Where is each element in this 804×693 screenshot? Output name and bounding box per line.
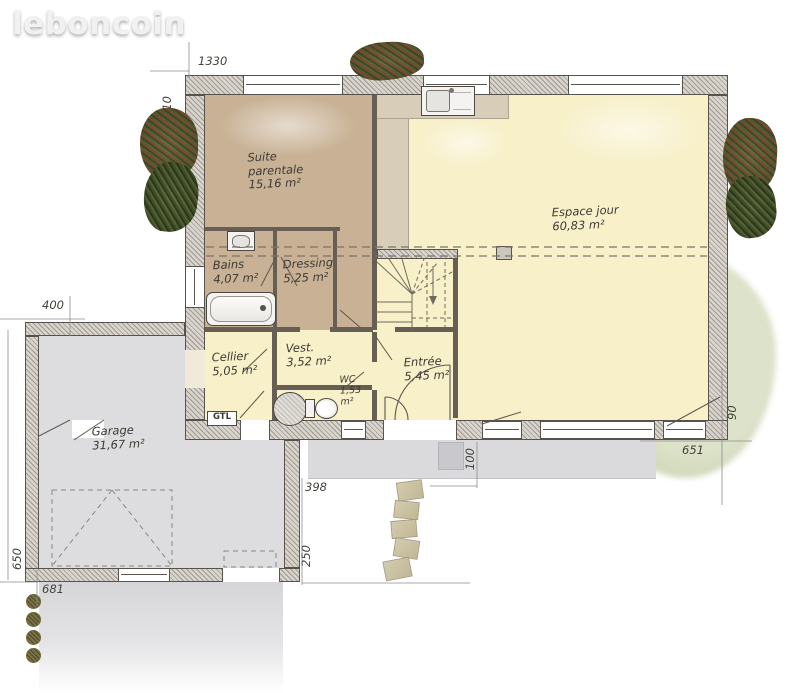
room-label-vestibule: Vest. 3,52 m² xyxy=(285,340,344,370)
room-area: 5,05 m² xyxy=(212,362,275,378)
staircase xyxy=(377,259,453,332)
leboncoin-logo: leboncoin xyxy=(12,6,186,42)
room-label-bains: Bains 4,07 m² xyxy=(212,257,271,287)
dim-courtyard-height: 250 xyxy=(299,545,313,567)
room-label-garage: Garage 31,67 m² xyxy=(91,422,162,452)
dim-garage-top-width: 400 xyxy=(42,298,64,312)
room-name: Suite parentale xyxy=(247,149,303,178)
car-space-dashed xyxy=(52,490,276,567)
dim-garage-left-height: 650 xyxy=(10,548,24,570)
room-name: Bains xyxy=(212,257,244,272)
room-area: 1,53 m² xyxy=(340,384,371,407)
dim-top-width: 1330 xyxy=(198,54,227,68)
room-area: 4,07 m² xyxy=(213,270,272,286)
room-name: Espace jour xyxy=(551,202,618,219)
dim-porch-depth: 100 xyxy=(463,448,477,470)
dim-terrace-width: 651 xyxy=(682,443,704,457)
plan-linework xyxy=(0,0,804,693)
room-name: Vest. xyxy=(285,340,314,355)
room-label-espace-jour: Espace jour 60,83 m² xyxy=(551,202,662,234)
dimension-extension-lines xyxy=(0,42,752,606)
dim-courtyard-width: 398 xyxy=(305,480,327,494)
floor-plan-page: leboncoin xyxy=(0,0,804,693)
dim-terrace-side: 90 xyxy=(725,405,739,420)
room-label-wc: WC 1,53 m² xyxy=(339,373,370,407)
room-label-cellier: Cellier 5,05 m² xyxy=(211,349,274,379)
room-area: 5,45 m² xyxy=(404,367,467,383)
room-area: 3,52 m² xyxy=(286,353,345,369)
room-area: 5,25 m² xyxy=(283,269,348,285)
room-label-dressing: Dressing 5,25 m² xyxy=(282,256,347,286)
dim-garage-bottom-width: 681 xyxy=(42,582,64,596)
ceiling-dashed-lines xyxy=(206,247,707,256)
room-label-entree: Entrée 5,45 m² xyxy=(403,354,466,384)
room-label-suite: Suite parentale 15,16 m² xyxy=(247,149,315,192)
room-name: WC xyxy=(339,374,355,386)
room-area: 15,16 m² xyxy=(248,176,315,192)
